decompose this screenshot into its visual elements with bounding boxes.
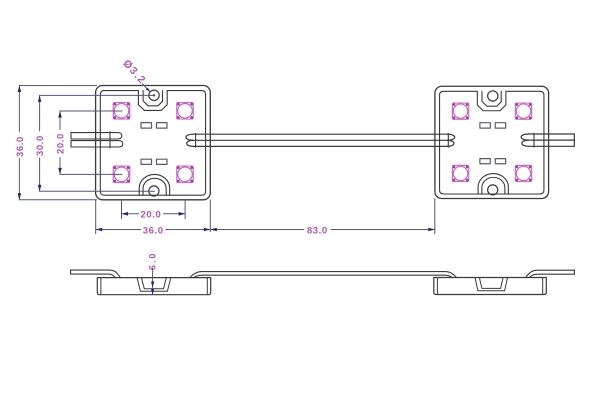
svg-text:6.0: 6.0	[147, 252, 157, 271]
svg-text:20.0: 20.0	[140, 209, 161, 220]
svg-text:36.0: 36.0	[15, 136, 26, 157]
svg-text:20.0: 20.0	[55, 133, 66, 154]
svg-text:36.0: 36.0	[143, 225, 164, 236]
svg-text:83.0: 83.0	[307, 225, 328, 236]
svg-text:30.0: 30.0	[35, 135, 46, 156]
svg-text:Ø3.2: Ø3.2	[120, 58, 148, 87]
